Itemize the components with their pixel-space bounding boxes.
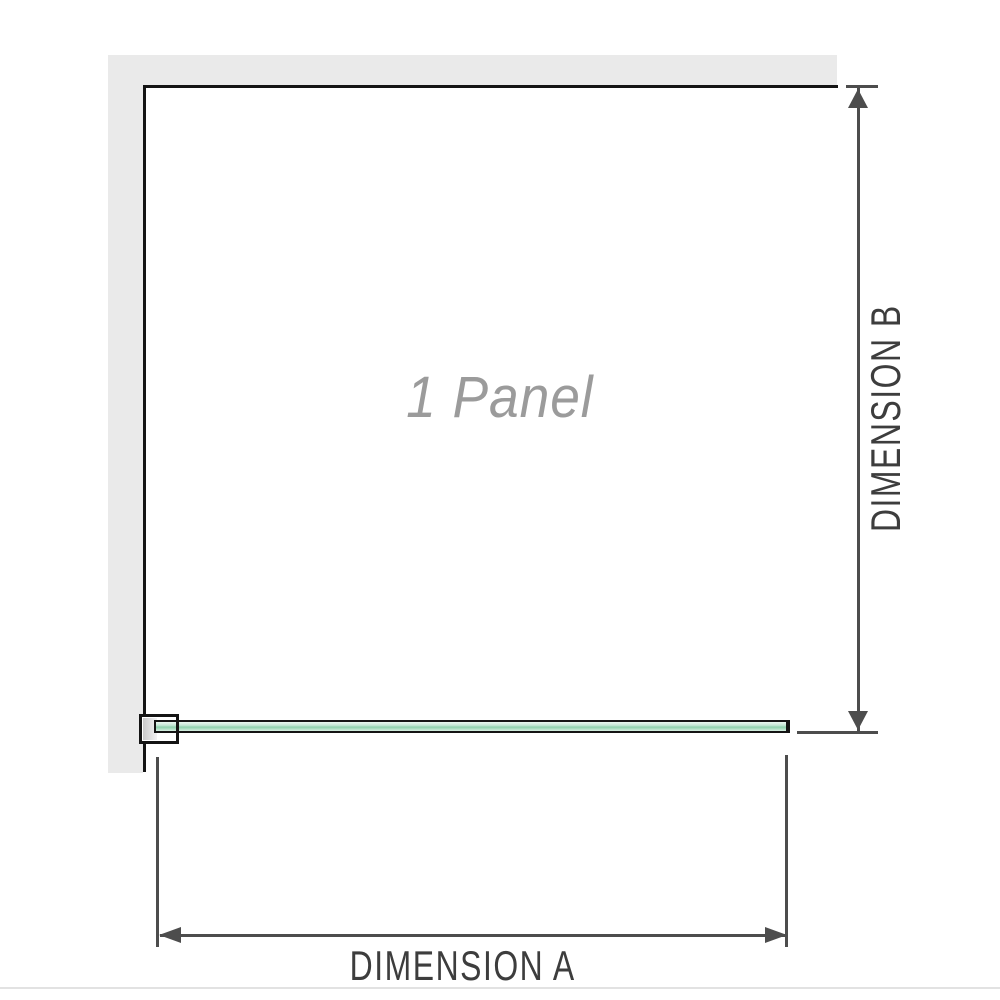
dimension-a-extension-left <box>156 757 159 947</box>
wall-bracket-outline <box>139 714 179 744</box>
dimension-b-line <box>857 88 860 731</box>
panel-label: 1 Panel <box>300 368 700 428</box>
dimension-a-extension-right <box>785 755 788 947</box>
dimension-b-tick-top <box>846 85 878 88</box>
panel-border-left <box>143 85 146 772</box>
shower-screen-panel-diagram: 1 Panel DIMENSION A DIMENSION B <box>0 0 1000 1000</box>
dimension-b-tick-bottom <box>797 731 878 734</box>
wall-left <box>108 55 143 773</box>
panel-border-top <box>143 85 838 88</box>
dimension-b-arrowhead-bottom <box>848 711 868 730</box>
dimension-a-arrowhead-right <box>765 927 787 943</box>
dimension-a-arrowhead-left <box>159 927 181 943</box>
dimension-a-label: DIMENSION A <box>263 946 663 986</box>
wall-top <box>108 55 837 85</box>
dimension-b-label-text: DIMENSION B <box>866 304 906 532</box>
glass-panel-bar <box>154 720 790 733</box>
panel-label-text: 1 Panel <box>406 368 593 428</box>
bottom-divider <box>0 987 1000 989</box>
dimension-a-label-text: DIMENSION A <box>350 946 576 986</box>
dimension-b-arrowhead-top <box>848 89 868 108</box>
dimension-a-line <box>160 934 786 937</box>
dimension-b-label: DIMENSION B <box>866 218 906 618</box>
